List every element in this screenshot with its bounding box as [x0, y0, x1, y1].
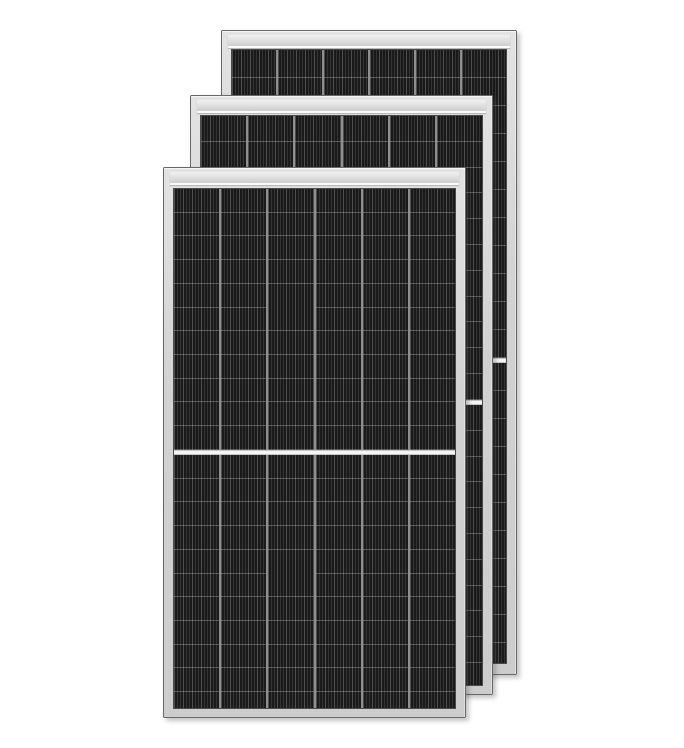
- cell-column: [221, 189, 266, 450]
- cell-column: [174, 189, 219, 450]
- cell-half-lower: [174, 455, 455, 708]
- cell-column: [268, 455, 313, 708]
- cell-column: [363, 189, 408, 450]
- cell-column: [174, 455, 219, 708]
- cell-column: [363, 455, 408, 708]
- solar-panel-front: [163, 167, 466, 718]
- frame-top-rail: [197, 100, 486, 113]
- cell-column: [316, 189, 361, 450]
- cell-half-upper: [174, 189, 455, 450]
- frame-top-rail: [170, 172, 459, 185]
- cell-area: [173, 188, 456, 709]
- cell-column: [221, 455, 266, 708]
- frame-top-rail: [228, 35, 510, 48]
- cell-column: [316, 455, 361, 708]
- cell-column: [410, 455, 455, 708]
- cell-column: [410, 189, 455, 450]
- cell-column: [268, 189, 313, 450]
- product-image-canvas: [0, 0, 684, 748]
